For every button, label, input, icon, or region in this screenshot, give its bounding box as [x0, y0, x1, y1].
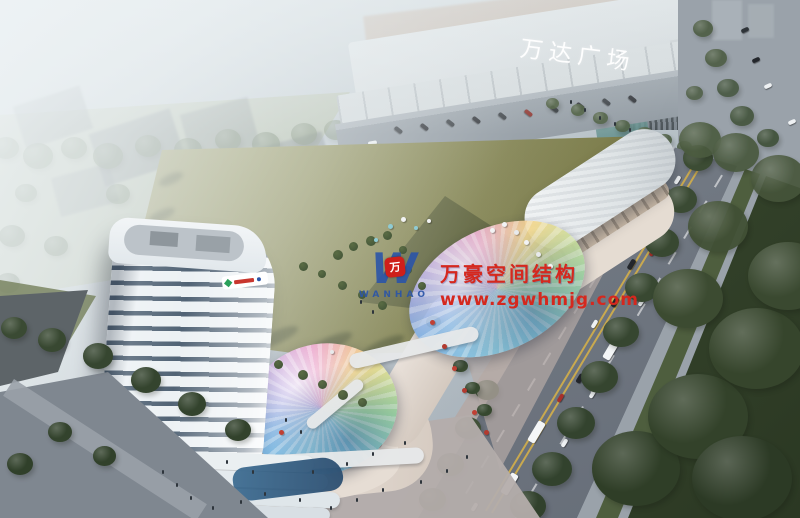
pedestrian: [584, 108, 586, 112]
tree: [93, 446, 116, 466]
rooftop-planting: [338, 390, 348, 400]
pedestrian: [252, 470, 254, 474]
tower-logo-mark: [234, 277, 254, 283]
rooftop-planting: [299, 262, 308, 271]
umbrella: [502, 222, 507, 227]
umbrella: [514, 230, 519, 235]
tree: [692, 436, 792, 518]
roof-equipment: [195, 235, 230, 253]
tree: [709, 308, 800, 389]
umbrella: [388, 224, 393, 229]
rooftop-planting: [383, 231, 392, 240]
pedestrian: [162, 470, 164, 474]
tree: [7, 453, 33, 475]
tree: [465, 382, 480, 395]
tree: [546, 98, 559, 109]
umbrella: [524, 240, 529, 245]
rooftop-planting: [338, 281, 347, 290]
distant-tower: [748, 4, 774, 38]
umbrella: [279, 430, 284, 435]
tree: [477, 404, 492, 417]
tower-logo-dot: [257, 277, 261, 281]
tree: [83, 343, 113, 369]
pedestrian: [372, 452, 374, 456]
pedestrian: [212, 506, 214, 510]
rooftop-planting: [298, 370, 308, 380]
watermark-line2: www.zgwhmjg.com: [440, 290, 639, 310]
pedestrian: [285, 418, 287, 422]
aerial-rendering: 万达广场 W 万 WANHAO 万豪空间结构 www.zgwhmjg.com: [0, 0, 800, 518]
umbrella: [442, 344, 447, 349]
pedestrian: [240, 500, 242, 504]
pedestrian: [570, 100, 572, 104]
rooftop-planting: [318, 270, 326, 278]
umbrella: [414, 226, 418, 230]
rooftop-planting: [358, 398, 367, 407]
pedestrian: [446, 469, 448, 473]
pedestrian: [299, 498, 301, 502]
tree: [653, 269, 723, 329]
pedestrian: [599, 116, 601, 120]
tree: [688, 201, 748, 252]
watermark-logo-name: WANHAO: [352, 290, 436, 300]
pedestrian: [356, 498, 358, 502]
tree: [571, 104, 585, 116]
umbrella: [427, 219, 431, 223]
tree: [686, 86, 703, 100]
pedestrian: [420, 480, 422, 484]
rooftop-planting: [318, 380, 327, 389]
tree: [751, 155, 800, 202]
pedestrian: [330, 506, 332, 510]
umbrella: [401, 217, 406, 222]
pedestrian: [190, 496, 192, 500]
tree: [1, 317, 27, 339]
tree: [713, 133, 759, 172]
rooftop-planting: [274, 360, 283, 369]
pedestrian: [382, 488, 384, 492]
umbrella: [330, 350, 334, 354]
umbrella: [462, 388, 467, 393]
pedestrian: [346, 462, 348, 466]
tree: [693, 20, 713, 37]
distant-tower: [712, 0, 742, 40]
tree: [38, 328, 66, 352]
tower-logo-diamond-icon: [224, 278, 232, 286]
watermark-logo: W 万 WANHAO: [352, 250, 436, 300]
watermark-text: 万豪空间结构 www.zgwhmjg.com: [440, 258, 639, 310]
umbrella: [452, 366, 457, 371]
tree: [131, 367, 161, 393]
watermark: W 万 WANHAO 万豪空间结构 www.zgwhmjg.com: [352, 250, 612, 320]
pedestrian: [404, 441, 406, 445]
pedestrian: [466, 455, 468, 459]
pedestrian: [226, 460, 228, 464]
tree: [557, 407, 595, 439]
pedestrian: [312, 470, 314, 474]
umbrella: [374, 238, 378, 242]
tree: [532, 452, 572, 486]
watermark-logo-badge: 万: [384, 256, 406, 278]
umbrella: [472, 410, 477, 415]
watermark-line1: 万豪空间结构: [440, 258, 639, 287]
umbrella: [484, 430, 489, 435]
tree: [225, 419, 251, 441]
roof-equipment: [150, 231, 179, 247]
pedestrian: [614, 122, 616, 126]
pedestrian: [264, 492, 266, 496]
umbrella: [490, 228, 495, 233]
tree: [581, 361, 618, 392]
pedestrian: [300, 430, 302, 434]
tree: [178, 392, 206, 416]
pedestrian: [629, 128, 631, 132]
tree: [615, 120, 630, 133]
umbrella: [430, 320, 435, 325]
rooftop-planting: [333, 250, 343, 260]
pedestrian: [176, 483, 178, 487]
